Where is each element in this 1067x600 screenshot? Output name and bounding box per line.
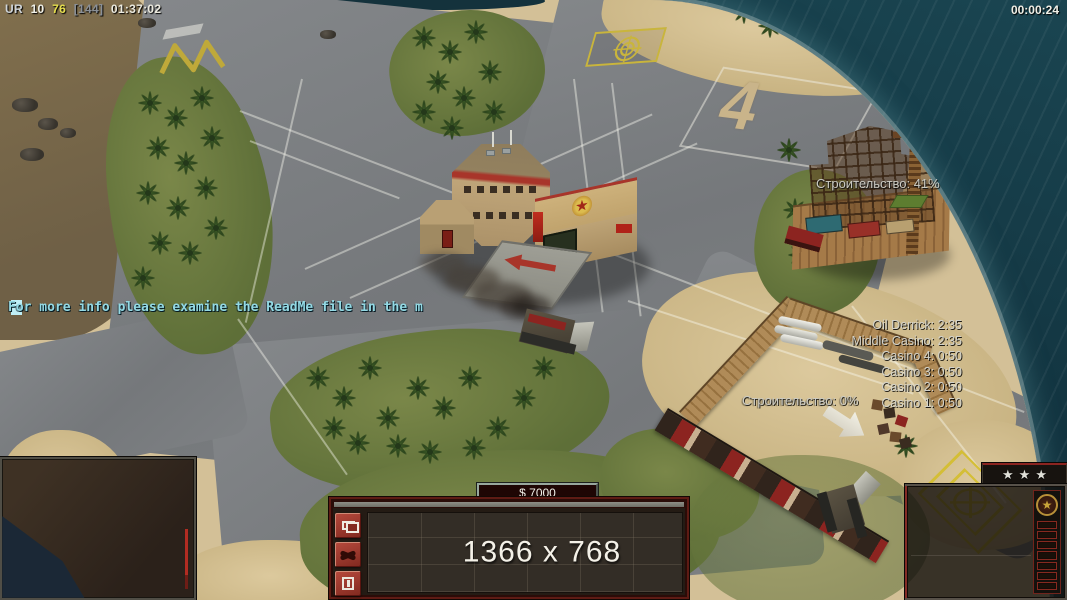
palm-tree — [511, 385, 537, 411]
command-grid: 1366 x 768 — [367, 512, 683, 593]
minimap-marker — [185, 529, 188, 575]
palm-tree — [147, 230, 173, 256]
palm-tree — [451, 85, 477, 111]
build-queue-list: Oil Derrick: 2:35 Middle Casino: 2:35 Ca… — [852, 318, 962, 412]
palm-tree — [137, 90, 163, 116]
antenna — [510, 130, 512, 145]
minimap-water — [2, 516, 112, 598]
minimap-marker — [185, 575, 188, 589]
helipad-pad — [585, 27, 667, 67]
palm-tree — [461, 435, 487, 461]
repair-button[interactable] — [335, 542, 361, 567]
crane-jib — [893, 132, 937, 138]
rock — [20, 148, 44, 161]
palm-tree — [477, 59, 503, 85]
palm-tree — [321, 415, 347, 441]
circle-target-icon — [587, 29, 669, 69]
chat-input-line[interactable]: For more info please examine the ReadMe … — [8, 300, 22, 316]
pause-button[interactable] — [335, 571, 361, 596]
match-timer: 00:00:24 — [1011, 3, 1059, 17]
game-screen: 4 ★ — [0, 0, 1067, 600]
palm-tree — [193, 175, 219, 201]
build-queue-item: Casino 1: 0:50 — [852, 396, 962, 412]
palm-tree — [331, 385, 357, 411]
minimap[interactable] — [0, 457, 196, 600]
options-button[interactable] — [335, 513, 361, 538]
palm-tree — [757, 13, 783, 39]
palm-tree — [405, 375, 431, 401]
palm-tree — [531, 355, 557, 381]
resolution-overlay: 1366 x 768 — [368, 535, 682, 569]
palm-tree — [731, 0, 757, 25]
palm-tree — [481, 99, 507, 125]
palm-tree — [357, 355, 383, 381]
windows-icon — [342, 521, 355, 530]
palm-tree — [425, 69, 451, 95]
palm-tree — [130, 265, 156, 291]
rank-column: ★ — [1033, 490, 1061, 594]
palm-tree — [485, 415, 511, 441]
status-clock: 01:37:02 — [111, 2, 161, 16]
palm-tree — [189, 85, 215, 111]
build-queue-item: Middle Casino: 2:35 — [852, 334, 962, 350]
build-queue-item: Oil Derrick: 2:35 — [852, 318, 962, 334]
building-windows — [464, 186, 540, 193]
red-banner — [533, 212, 543, 242]
debug-status-text: UR 10 76 [144] 01:37:02 — [5, 2, 165, 16]
gatehouse-door — [442, 230, 453, 248]
roof-vent — [502, 148, 511, 154]
rock — [320, 30, 336, 39]
general-promotion-button[interactable]: ★★★ — [982, 463, 1067, 485]
wrench-icon — [339, 548, 357, 562]
palm-tree — [411, 25, 437, 51]
palm-tree — [345, 430, 371, 456]
palm-tree — [439, 115, 465, 141]
helipad-h-marking — [154, 32, 228, 79]
build-queue-item: Casino 3: 0:50 — [852, 365, 962, 381]
rock — [38, 118, 58, 130]
roof-vent — [486, 150, 495, 156]
palm-tree — [163, 105, 189, 131]
palm-tree — [145, 135, 171, 161]
palm-tree — [203, 215, 229, 241]
construction-progress-label: Строительство: 0% — [742, 393, 859, 408]
rock — [138, 18, 156, 28]
palm-tree — [177, 240, 203, 266]
star-icon: ★ — [1036, 494, 1058, 516]
palm-tree — [437, 39, 463, 65]
command-bar: 1366 x 768 — [328, 496, 690, 600]
palm-tree — [411, 99, 437, 125]
palm-tree — [375, 405, 401, 431]
chat-text: For more info please examine the ReadMe … — [8, 300, 423, 315]
status-tag: UR — [5, 2, 23, 16]
palm-tree — [165, 195, 191, 221]
palm-tree — [431, 395, 457, 421]
red-sign — [616, 224, 632, 233]
unit-portrait-panel: ★ — [905, 484, 1067, 600]
palm-tree — [417, 439, 443, 465]
palm-tree — [776, 137, 802, 163]
palm-tree — [385, 433, 411, 459]
antenna — [492, 132, 494, 147]
build-queue-item: Casino 4: 0:50 — [852, 349, 962, 365]
panel-divider — [911, 555, 1031, 556]
pause-icon — [342, 577, 354, 590]
build-queue-item: Casino 2: 0:50 — [852, 380, 962, 396]
status-value-1: 10 — [31, 2, 45, 16]
status-value-2: 76 — [52, 2, 66, 16]
palm-tree — [305, 365, 331, 391]
construction-progress-label: Строительство: 41% — [816, 176, 940, 191]
palm-tree — [135, 180, 161, 206]
palm-tree — [457, 365, 483, 391]
palm-tree — [199, 125, 225, 151]
experience-cells — [1037, 521, 1057, 590]
rock — [12, 98, 38, 112]
rock — [60, 128, 76, 138]
status-bracket: [144] — [74, 2, 104, 16]
palm-tree — [173, 150, 199, 176]
command-bar-trim — [333, 501, 685, 508]
palm-tree — [463, 19, 489, 45]
